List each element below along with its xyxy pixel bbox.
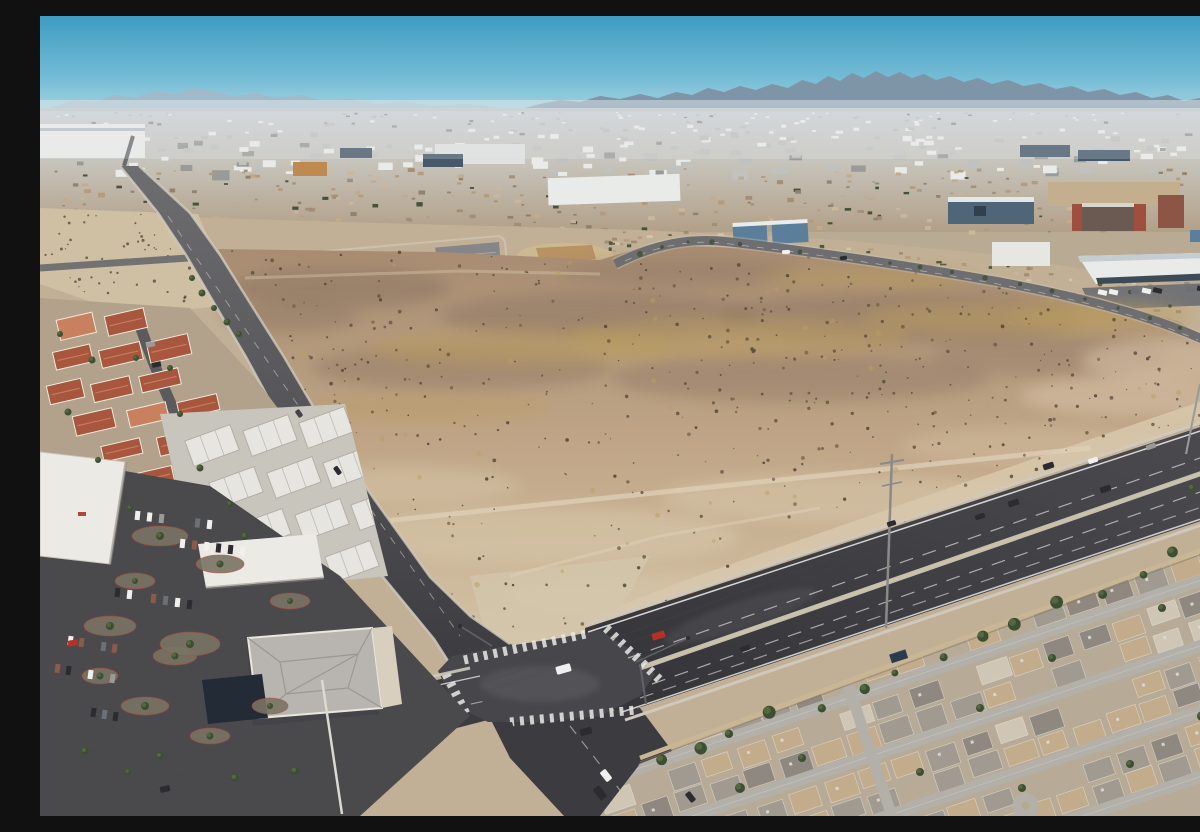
shrub xyxy=(684,382,687,385)
roof-speck xyxy=(712,223,717,226)
shrub xyxy=(567,266,568,267)
shrub xyxy=(670,315,671,316)
shrub xyxy=(1106,348,1108,350)
shrub xyxy=(695,426,698,429)
shrub xyxy=(492,458,496,462)
warehouse-center xyxy=(548,174,681,206)
building-speck xyxy=(851,165,866,171)
shrub xyxy=(123,245,125,247)
shrub xyxy=(291,356,294,359)
shrub xyxy=(1025,318,1027,320)
roof-speck xyxy=(382,184,388,187)
shrub xyxy=(973,453,975,455)
shrub xyxy=(264,273,266,275)
roof-speck xyxy=(375,176,380,178)
shrub xyxy=(84,291,85,292)
building-speck xyxy=(1022,162,1031,166)
brush xyxy=(1116,306,1119,309)
shrub xyxy=(733,398,734,399)
shrub xyxy=(857,375,859,377)
parked-car xyxy=(216,543,222,552)
shrub xyxy=(947,297,949,299)
roof-speck xyxy=(896,172,901,175)
shrub xyxy=(878,387,881,390)
shrub xyxy=(377,294,381,298)
tree-highlight xyxy=(940,654,944,658)
shrub xyxy=(154,234,156,236)
shrub xyxy=(667,510,670,513)
shrub xyxy=(512,584,514,586)
brush xyxy=(1083,297,1087,301)
grass-tuft xyxy=(402,334,407,339)
shrub xyxy=(514,361,516,363)
shrub xyxy=(786,289,790,293)
roof-speck xyxy=(1048,231,1051,232)
shrub xyxy=(901,325,905,329)
shrub xyxy=(718,388,721,391)
roof-speck xyxy=(847,174,852,177)
grass-tuft xyxy=(606,377,609,380)
parked-car xyxy=(151,594,157,603)
roof-speck xyxy=(684,231,689,234)
roof-speck xyxy=(954,171,958,174)
roof-speck xyxy=(847,248,851,250)
shrub xyxy=(110,271,112,273)
shrub xyxy=(341,369,344,372)
shrub xyxy=(488,378,490,380)
shrub xyxy=(1143,335,1145,337)
shrub xyxy=(1126,389,1127,390)
tree-highlight xyxy=(799,755,803,759)
shrub xyxy=(340,254,343,257)
roof-speck xyxy=(255,199,258,201)
shrub xyxy=(872,436,874,438)
shrub xyxy=(659,295,660,296)
shrub xyxy=(563,617,565,619)
shrub xyxy=(501,267,503,269)
shrub xyxy=(679,271,681,273)
roof-speck xyxy=(1079,179,1082,181)
shrub xyxy=(945,341,946,342)
shrub xyxy=(982,290,985,293)
shrub xyxy=(382,398,384,400)
shrub xyxy=(900,346,902,348)
parked-car xyxy=(163,596,169,605)
shrub xyxy=(884,295,886,297)
shrub xyxy=(551,300,554,303)
grass-tuft xyxy=(568,260,572,264)
roof-speck xyxy=(278,188,283,191)
building-speck xyxy=(550,169,559,174)
car xyxy=(840,256,847,261)
shrub xyxy=(702,318,704,320)
roof-speck xyxy=(368,175,371,176)
shrub xyxy=(134,222,136,224)
shrub xyxy=(1179,405,1181,407)
shrub xyxy=(139,232,141,234)
shrub xyxy=(144,249,146,251)
shrub xyxy=(155,248,157,250)
shrub xyxy=(1028,437,1030,439)
building-speck xyxy=(180,165,192,171)
roof-speck xyxy=(255,175,260,178)
shrub xyxy=(1176,398,1179,401)
roof-speck xyxy=(372,204,378,208)
roof-speck xyxy=(1006,178,1009,180)
shrub xyxy=(506,268,508,270)
roof-speck xyxy=(828,205,833,207)
tree-highlight xyxy=(242,533,246,537)
shrub xyxy=(389,321,393,325)
shrub xyxy=(384,326,387,329)
shrub xyxy=(805,351,809,355)
shrub xyxy=(519,324,522,327)
roof-speck xyxy=(457,209,463,212)
shrub xyxy=(349,324,352,327)
roof-speck xyxy=(904,192,910,194)
shrub xyxy=(441,376,443,378)
shrub xyxy=(882,380,886,384)
roof-speck xyxy=(936,195,940,198)
roof-speck xyxy=(82,183,88,186)
shrub xyxy=(1054,404,1057,407)
roof-speck xyxy=(408,219,412,222)
shrub xyxy=(1135,414,1137,416)
tree-highlight xyxy=(217,561,221,565)
grass-tuft xyxy=(830,318,834,322)
shrub xyxy=(970,415,972,417)
roof-speck xyxy=(1006,190,1011,193)
shrub xyxy=(729,365,730,366)
grass-tuft xyxy=(556,271,561,276)
building-speck xyxy=(681,162,692,166)
shrub xyxy=(60,248,63,251)
roof-speck xyxy=(795,190,801,194)
shrub xyxy=(334,394,336,396)
shrub xyxy=(78,278,81,281)
shrub xyxy=(407,415,409,417)
shrub xyxy=(390,259,393,262)
roof-speck xyxy=(331,188,335,191)
shrub xyxy=(677,454,679,456)
brush xyxy=(1168,304,1172,308)
shrub xyxy=(793,357,795,359)
shrub xyxy=(850,282,853,285)
tree-highlight xyxy=(1009,619,1016,626)
building-speck xyxy=(667,166,680,172)
roof-speck xyxy=(642,227,647,230)
tree-highlight xyxy=(1019,785,1023,789)
building-speck xyxy=(1043,165,1057,173)
roof-speck xyxy=(349,202,353,204)
grass-tuft xyxy=(650,298,655,303)
shrub xyxy=(526,271,528,273)
shrub xyxy=(787,308,790,311)
shrub xyxy=(964,350,966,352)
shrub xyxy=(789,400,791,402)
parked-car xyxy=(228,545,234,554)
shrub xyxy=(275,284,277,286)
shrub xyxy=(451,534,454,537)
shrub xyxy=(763,308,766,311)
roof-speck xyxy=(1016,272,1019,275)
brush xyxy=(1018,282,1022,286)
parked-car xyxy=(195,518,201,527)
shrub xyxy=(640,263,642,265)
shrub xyxy=(905,406,907,408)
shrub xyxy=(633,302,635,304)
roof-speck xyxy=(868,198,873,200)
shrub xyxy=(1071,373,1074,376)
shrub xyxy=(1052,418,1055,421)
roof-speck xyxy=(494,195,500,198)
roof-speck xyxy=(868,248,874,250)
shrub xyxy=(964,423,966,425)
tree-highlight xyxy=(1127,761,1131,765)
roof-speck xyxy=(609,247,612,250)
roof-speck xyxy=(573,214,576,216)
shrub xyxy=(867,304,870,307)
tree-highlight xyxy=(95,457,98,460)
shrub xyxy=(1151,423,1154,426)
tree-highlight xyxy=(917,769,921,773)
roof-speck xyxy=(408,168,415,172)
shrub xyxy=(478,557,481,560)
shrub xyxy=(101,258,103,260)
shrub xyxy=(726,565,729,568)
shrub xyxy=(354,363,356,365)
shrub xyxy=(1112,318,1116,322)
shrub xyxy=(51,253,53,255)
shrub xyxy=(745,337,748,340)
roof-speck xyxy=(117,183,123,185)
shrub xyxy=(721,346,723,348)
shrub xyxy=(866,427,869,430)
roof-speck xyxy=(322,197,328,200)
shrub xyxy=(693,308,695,310)
shrub xyxy=(538,282,540,284)
building-speck xyxy=(771,167,788,173)
tree-highlight xyxy=(65,409,69,413)
shrub xyxy=(922,366,924,368)
aerial-photo: High-angle aerial drone photo of a large… xyxy=(40,16,1200,816)
shrub xyxy=(588,441,590,443)
shrub xyxy=(968,399,970,401)
shrub xyxy=(1051,350,1053,352)
shrub xyxy=(435,308,438,311)
shrub xyxy=(458,264,461,267)
tree-highlight xyxy=(142,703,146,707)
shrub xyxy=(68,222,71,225)
building-speck xyxy=(77,162,84,166)
roof-speck xyxy=(627,244,631,247)
roof-speck xyxy=(917,189,922,192)
roof-speck xyxy=(777,180,783,184)
shrub xyxy=(183,297,186,300)
shrub xyxy=(632,343,634,345)
shrub xyxy=(474,433,477,436)
shrub xyxy=(170,248,171,249)
shrub xyxy=(879,344,881,346)
shrub xyxy=(962,306,963,307)
shrub xyxy=(913,445,916,448)
roof-speck xyxy=(494,200,497,202)
roof-speck xyxy=(896,208,900,210)
grass-tuft xyxy=(301,352,306,357)
shrub xyxy=(919,481,922,484)
shrub xyxy=(1094,394,1097,397)
shrub xyxy=(730,397,733,400)
shrub xyxy=(1002,443,1005,446)
roof-speck xyxy=(679,213,685,216)
shrub xyxy=(439,362,441,364)
shrub xyxy=(912,470,913,471)
shrub xyxy=(1157,383,1160,386)
shrub xyxy=(1004,422,1006,424)
shrub xyxy=(1001,324,1005,328)
shrub xyxy=(453,422,455,424)
roof-speck xyxy=(901,214,908,218)
brush xyxy=(1178,326,1182,330)
shrub xyxy=(371,410,374,413)
brush xyxy=(798,250,803,255)
shrub xyxy=(409,378,411,380)
shrub xyxy=(790,392,793,395)
shrub xyxy=(705,461,707,463)
roof-speck xyxy=(684,168,687,169)
grass-tuft xyxy=(560,569,564,573)
shrub xyxy=(1146,383,1147,384)
roof-speck xyxy=(1182,172,1187,175)
parked-car xyxy=(207,520,213,529)
shrub xyxy=(98,282,100,284)
roof-speck xyxy=(962,263,967,266)
brush xyxy=(982,275,987,280)
roof-speck xyxy=(817,226,823,230)
shrub xyxy=(625,395,629,399)
shrub xyxy=(640,491,643,494)
roof-speck xyxy=(80,198,84,200)
building-speck xyxy=(533,161,548,168)
shrub xyxy=(960,476,961,477)
grass-tuft xyxy=(875,330,881,336)
shrub xyxy=(761,313,763,315)
shrub xyxy=(808,268,810,270)
roof-speck xyxy=(992,192,996,194)
shrub xyxy=(1002,292,1004,294)
shrub xyxy=(710,267,713,270)
grass-tuft xyxy=(803,325,808,330)
shrub xyxy=(493,508,495,510)
shrub xyxy=(142,239,145,242)
shrub xyxy=(682,417,683,418)
roof-speck xyxy=(390,216,393,217)
shrub xyxy=(792,280,795,283)
shrub xyxy=(492,274,494,276)
roof-speck xyxy=(98,193,105,198)
shrub xyxy=(821,284,823,286)
shrub xyxy=(838,359,839,360)
shrub xyxy=(805,400,808,403)
shrub xyxy=(586,584,589,587)
shrub xyxy=(866,396,869,399)
shrub xyxy=(137,241,139,243)
shrub xyxy=(757,455,758,456)
roof-speck xyxy=(927,219,932,222)
shrub xyxy=(148,244,150,246)
roof-speck xyxy=(765,181,768,182)
roof-speck xyxy=(1050,219,1053,221)
roof-speck xyxy=(395,175,399,177)
shrub xyxy=(289,335,291,337)
building-speck xyxy=(129,163,138,166)
shrub xyxy=(414,509,416,511)
roof-speck xyxy=(769,218,773,220)
shrub xyxy=(673,284,676,287)
grass-tuft xyxy=(474,582,480,588)
shrub xyxy=(693,532,695,534)
shrub xyxy=(541,374,543,376)
roof-speck xyxy=(631,241,637,244)
roof-speck xyxy=(427,216,430,217)
shrub xyxy=(544,263,546,265)
shrub xyxy=(603,353,606,356)
navy-annex xyxy=(202,674,268,724)
shrub xyxy=(1044,354,1045,355)
shrub xyxy=(481,523,482,524)
grass-tuft xyxy=(868,366,873,371)
roof-speck xyxy=(809,220,814,223)
shrub xyxy=(413,499,415,501)
shrub xyxy=(833,350,836,353)
shrub xyxy=(991,307,993,309)
shrub xyxy=(379,298,382,301)
tree-highlight xyxy=(189,275,192,278)
shrub xyxy=(463,425,465,427)
tree-highlight xyxy=(292,768,296,772)
shrub xyxy=(889,287,892,290)
shrub xyxy=(996,416,998,418)
shrub xyxy=(879,364,881,366)
shrub xyxy=(949,384,951,386)
roof-speck xyxy=(1032,181,1038,184)
shrub xyxy=(736,277,739,280)
roof-speck xyxy=(416,202,422,206)
shrub xyxy=(881,320,884,323)
roof-speck xyxy=(950,193,953,194)
roof-speck xyxy=(868,211,873,214)
roof-speck xyxy=(615,242,620,245)
shrub xyxy=(932,444,934,446)
shrub xyxy=(477,415,478,416)
shrub xyxy=(409,327,412,330)
shrub xyxy=(504,582,507,585)
grass-tuft xyxy=(709,501,712,504)
orange-building xyxy=(293,162,327,176)
shrub xyxy=(936,487,938,489)
shrub xyxy=(637,566,640,569)
shrub xyxy=(851,392,853,394)
shrub xyxy=(864,335,867,338)
shrub xyxy=(720,470,724,474)
shrub xyxy=(761,393,764,396)
shrub xyxy=(356,432,357,433)
parked-car xyxy=(127,590,133,599)
shrub xyxy=(642,555,646,559)
shrub xyxy=(1186,342,1189,345)
shrub xyxy=(342,349,344,351)
shrub xyxy=(786,274,789,277)
